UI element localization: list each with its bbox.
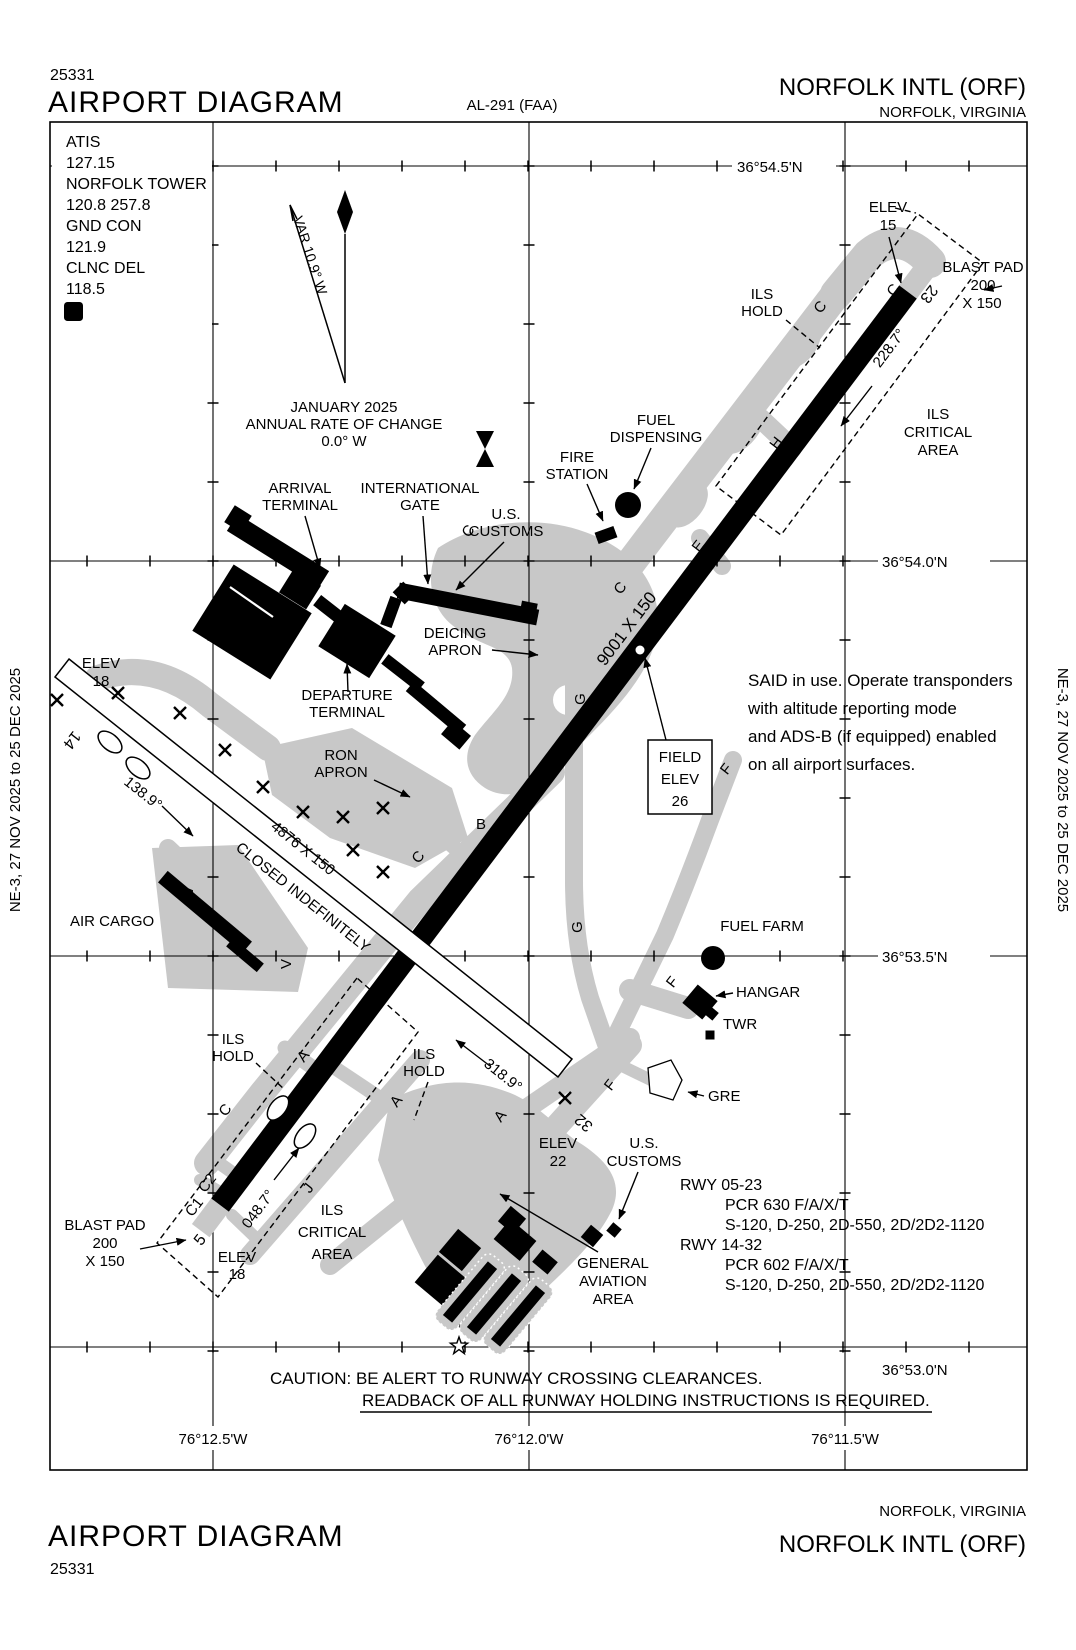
caution-line-2: READBACK OF ALL RUNWAY HOLDING INSTRUCTI… [362,1391,930,1410]
elev-18-s-1: ELEV [218,1249,256,1266]
field-elev-1: FIELD [659,749,702,766]
elev-22-1: ELEV [539,1135,577,1152]
svg-text:D: D [68,304,78,320]
ils-critical-ne-1: ILS [927,406,950,423]
footer-airport: NORFOLK INTL (ORF) [779,1531,1026,1558]
taxiway-v-1: V [180,886,197,896]
ils-critical-sw-2: CRITICAL [298,1224,366,1241]
blast-pad-sw-1: BLAST PAD [64,1217,145,1234]
international-gate-1: INTERNATIONAL [361,480,480,497]
rwy-0523-pcr: PCR 630 F/A/X/T [725,1197,849,1214]
ils-critical-ne-3: AREA [918,442,959,459]
fuel-dispensing-2: DISPENSING [610,429,703,446]
ils-hold-sw-1: ILS [222,1031,245,1048]
ils-hold-ne-2: HOLD [741,303,783,320]
lat-53-0: 36°53.0'N [882,1362,948,1379]
elev-18-s-2: 18 [229,1266,246,1283]
deicing-apron-2: APRON [428,642,481,659]
fuel-dispensing-1: FUEL [637,412,675,429]
elev-15-label: ELEV [869,199,907,216]
arrival-terminal-2: TERMINAL [262,497,338,514]
general-aviation-1: GENERAL [577,1255,649,1272]
ron-apron-1: RON [324,747,357,764]
us-customs-s-2: CUSTOMS [607,1153,682,1170]
clnc-label: CLNC DEL [66,260,145,277]
airport-city: NORFOLK, VIRGINIA [879,104,1026,121]
rwy-14-number: 14 [59,728,83,753]
elev-18-nw-1: ELEV [82,655,120,672]
international-gate-2: GATE [400,497,440,514]
airport-name: NORFOLK INTL (ORF) [779,74,1026,101]
tower-label: NORFOLK TOWER [66,176,207,193]
departure-terminal-2: TERMINAL [309,704,385,721]
caution-line-1: CAUTION: BE ALERT TO RUNWAY CROSSING CLE… [270,1369,763,1388]
said-line-3: and ADS-B (if equipped) enabled [748,727,997,746]
elev-18-nw-2: 18 [93,673,110,690]
ils-hold-ne-1: ILS [751,286,774,303]
us-customs-n-1: U.S. [491,506,520,523]
airport-diagram-page: 25331 AIRPORT DIAGRAM AL-291 (FAA) NORFO… [0,0,1076,1650]
general-aviation-2: AVIATION [579,1273,647,1290]
footer-city: NORFOLK, VIRGINIA [879,1503,1026,1520]
ils-hold-mid-1: ILS [413,1046,436,1063]
tower-freq: 120.8 257.8 [66,197,151,214]
us-customs-n-2: CUSTOMS [469,523,544,540]
said-line-2: with altitude reporting mode [747,699,957,718]
footer: AIRPORT DIAGRAM 25331 NORFOLK, VIRGINIA … [48,1503,1026,1578]
field-elev-box: FIELD ELEV 26 [648,740,712,814]
variation-label: VAR 10.9° W [290,214,331,297]
gnd-label: GND CON [66,218,142,235]
deicing-apron-1: DEICING [424,625,487,642]
footer-chart-number: 25331 [50,1561,95,1578]
variation-date: JANUARY 2025 [290,399,397,416]
lat-54-5: 36°54.5'N [737,159,803,176]
ron-apron-2: APRON [314,764,367,781]
clnc-freq: 118.5 [66,281,105,298]
elev-22-2: 22 [550,1153,567,1170]
gre-label: GRE [708,1088,741,1105]
ils-critical-area-sw-boundary [157,978,418,1297]
rwy-1432-title: RWY 14-32 [680,1237,762,1254]
general-aviation-3: AREA [593,1291,634,1308]
field-elev-point [636,646,645,655]
ils-hold-sw-2: HOLD [212,1048,254,1065]
al-number: AL-291 (FAA) [467,97,558,114]
runway-data-block: RWY 05-23 PCR 630 F/A/X/T S-120, D-250, … [680,1177,985,1294]
field-elev-2: ELEV [661,771,699,788]
fuel-farm-label: FUEL FARM [720,918,804,935]
ils-critical-sw-3: AREA [312,1246,353,1263]
fire-station-2: STATION [546,466,609,483]
page-title: AIRPORT DIAGRAM [48,86,344,119]
variation-rate: ANNUAL RATE OF CHANGE [246,416,443,433]
fire-station-1: FIRE [560,449,594,466]
said-line-1: SAID in use. Operate transponders [748,671,1013,690]
lon-12-0: 76°12.0'W [495,1431,565,1448]
lat-54-0: 36°54.0'N [882,554,948,571]
variation-rate-value: 0.0° W [321,433,367,450]
taxiway-v-2: V [278,959,295,969]
fuel-farm-symbol [701,946,725,970]
rwy-0523-title: RWY 05-23 [680,1177,762,1194]
field-elev-3: 26 [672,793,689,810]
fire-station-building [595,526,618,544]
gre-area [648,1060,682,1100]
departure-terminal-1: DEPARTURE [301,687,392,704]
fuel-dispensing-symbol [615,492,641,518]
atis-freq: 127.15 [66,155,115,172]
lat-53-5: 36°53.5'N [882,949,948,966]
hangar-label: HANGAR [736,984,800,1001]
ils-critical-ne-2: CRITICAL [904,424,972,441]
tower-building [706,1031,715,1040]
twr-label: TWR [723,1016,757,1033]
rwy-1432-codes: S-120, D-250, 2D-550, 2D/2D2-1120 [725,1277,985,1294]
elev-15-value: 15 [880,217,897,234]
lon-11-5: 76°11.5'W [811,1431,880,1448]
lon-12-5: 76°12.5'W [179,1431,249,1448]
blast-pad-ne-1: BLAST PAD [942,259,1023,276]
ils-hold-mid-2: HOLD [403,1063,445,1080]
rwy-0523-codes: S-120, D-250, 2D-550, 2D/2D2-1120 [725,1217,985,1234]
rwy-1432-pcr: PCR 602 F/A/X/T [725,1257,849,1274]
air-cargo-label: AIR CARGO [70,913,154,930]
blast-pad-ne-2: 200 [970,277,995,294]
left-edition-note: NE-3, 27 NOV 2025 to 25 DEC 2025 [7,668,24,912]
taxiway-b: B [476,816,486,833]
ils-critical-sw-1: ILS [321,1202,344,1219]
taxiway-g-2: G [569,921,586,933]
right-edition-note: NE-3, 27 NOV 2025 to 25 DEC 2025 [1054,668,1071,912]
atis-label: ATIS [66,134,100,151]
gnd-freq: 121.9 [66,239,106,256]
said-line-4: on all airport surfaces. [748,755,915,774]
atis-d-icon: D [64,302,83,321]
beacon-icon [476,431,494,467]
taxiway-f-2: F [663,973,682,991]
footer-title: AIRPORT DIAGRAM [48,1520,344,1553]
arrival-terminal-1: ARRIVAL [268,480,331,497]
us-customs-s-1: U.S. [629,1135,658,1152]
true-north-arrow [337,190,353,234]
blast-pad-sw-2: 200 [92,1235,117,1252]
said-note: SAID in use. Operate transponders with a… [747,671,1013,774]
taxiway-g-1: G [572,693,589,705]
blast-pad-sw-3: X 150 [85,1253,124,1270]
chart-number: 25331 [50,67,95,84]
header: 25331 AIRPORT DIAGRAM AL-291 (FAA) NORFO… [48,67,1026,121]
blast-pad-ne-3: X 150 [962,295,1001,312]
diagram-canvas: 25331 AIRPORT DIAGRAM AL-291 (FAA) NORFO… [0,0,1076,1650]
